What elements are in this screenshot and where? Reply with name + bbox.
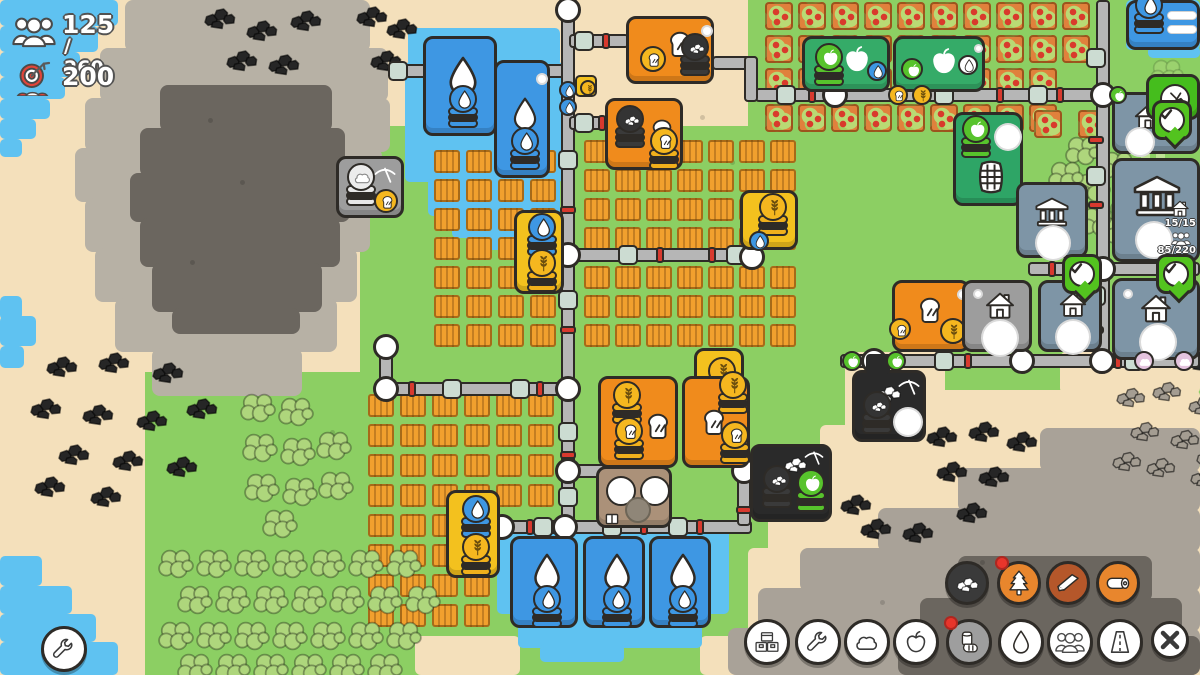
wheat-field-tile <box>677 227 703 250</box>
tree-icon <box>310 548 346 580</box>
drop-icon <box>872 65 884 79</box>
speckle <box>980 560 985 565</box>
wheat-field-tile <box>770 140 796 163</box>
building-town-hall[interactable] <box>1016 182 1088 258</box>
wheat-field-tile <box>368 484 394 507</box>
wheat-field-tile <box>677 324 703 347</box>
coal-deposit-icon <box>26 392 64 420</box>
green-apple-stack-token <box>797 469 825 497</box>
apple-icon <box>907 63 921 78</box>
check-icon <box>1162 260 1178 276</box>
rock-icon <box>354 168 371 187</box>
building-coal-mine[interactable] <box>852 370 926 442</box>
wheat-field-tile <box>615 169 641 192</box>
building-water-collector[interactable] <box>583 536 645 628</box>
worker-slot <box>973 289 983 299</box>
tree-icon <box>234 548 270 580</box>
worker-slot <box>1123 289 1133 299</box>
road-connector <box>388 61 408 81</box>
road-node[interactable] <box>373 334 399 360</box>
drop-icon <box>1142 0 1159 15</box>
wheat-field-tile <box>739 140 765 163</box>
blue-stack-token <box>528 213 556 241</box>
orchard-tile <box>831 2 859 30</box>
bread-icon <box>643 411 673 441</box>
toolbar-button-close[interactable] <box>1151 621 1189 659</box>
bread-icon <box>646 51 662 69</box>
coal-deposit-icon <box>42 350 80 378</box>
terrain-water <box>0 99 50 119</box>
building-bakery[interactable] <box>605 98 683 170</box>
road-node[interactable] <box>555 0 581 23</box>
cargo-token <box>580 80 596 96</box>
wheat-field-tile <box>646 324 672 347</box>
tree-icon <box>386 548 422 580</box>
wheat-field-tile <box>739 169 765 192</box>
terrain-water <box>540 644 624 662</box>
tree-icon <box>282 476 318 508</box>
wheat-field-tile <box>496 454 522 477</box>
output-rack <box>1167 25 1197 34</box>
gold-wheat-stack-token <box>528 249 556 277</box>
wheat-field-tile <box>464 604 490 627</box>
road-blocked-marker <box>656 247 664 263</box>
blue-stack-token <box>603 585 631 613</box>
wheat-field-tile <box>498 179 524 202</box>
drop-icon <box>754 235 766 249</box>
bread-icon <box>380 194 395 210</box>
tree-icon <box>310 620 346 652</box>
stone-deposit-icon <box>1186 462 1200 488</box>
check-icon <box>1158 106 1174 122</box>
wheat-field-tile <box>466 324 492 347</box>
check-icon <box>1068 260 1084 276</box>
coal-stack-token <box>681 33 709 61</box>
pick-icon <box>373 165 397 183</box>
tree-icon <box>272 548 308 580</box>
cargo-token <box>888 85 908 105</box>
wheat-field-tile <box>464 424 490 447</box>
orchard-tile <box>798 2 826 30</box>
wheat-field-tile <box>434 324 460 347</box>
road-connector <box>442 379 462 399</box>
building-apple-farm[interactable] <box>802 36 890 92</box>
wheat-field-tile <box>498 324 524 347</box>
wheat-field-tile <box>530 324 556 347</box>
coal-deposit-icon <box>108 444 146 472</box>
house-icon <box>1139 293 1173 325</box>
wheat-field-tile <box>464 454 490 477</box>
wheat-field-tile <box>528 454 554 477</box>
drop-icon <box>1009 630 1033 654</box>
stone-deposit-icon <box>1126 416 1162 442</box>
road-connector <box>1086 48 1106 68</box>
stone-deposit-icon <box>1108 446 1144 472</box>
wheat-field-tile <box>368 514 394 537</box>
road-blocked-marker <box>708 247 716 263</box>
rock-icon <box>855 630 879 654</box>
tree-icon <box>272 620 308 652</box>
coal-deposit-icon <box>286 4 324 32</box>
orchard-tile <box>765 35 793 63</box>
road-connector <box>533 517 553 537</box>
road-blocked-marker <box>964 353 972 369</box>
road-segment[interactable] <box>744 56 758 102</box>
tree-icon <box>215 652 251 675</box>
submenu-button-sawmill[interactable] <box>1046 561 1090 605</box>
wheat-field-tile <box>708 198 734 221</box>
tree-icon <box>234 620 270 652</box>
close-icon <box>1158 628 1182 652</box>
terrain-water <box>0 346 24 368</box>
wheat-field-tile <box>434 208 460 231</box>
building-water-collector[interactable] <box>423 36 497 136</box>
road-blocked-marker <box>526 519 534 535</box>
bread-icon <box>895 323 909 338</box>
toolbar-button-food[interactable] <box>893 619 939 665</box>
tree-icon <box>196 620 232 652</box>
apple-icon <box>847 355 859 369</box>
wheat-field-tile <box>770 324 796 347</box>
wrench-icon <box>52 637 76 661</box>
road-blocked-marker <box>560 206 576 214</box>
drop-icon <box>535 218 552 237</box>
coalpile-icon <box>870 396 887 415</box>
wheat-field-tile <box>528 424 554 447</box>
road-node[interactable] <box>373 376 399 402</box>
tree-icon <box>1006 570 1032 596</box>
people-icon <box>12 14 56 48</box>
road-connector <box>934 351 954 371</box>
road-blocked-marker <box>408 381 416 397</box>
coal-deposit-icon <box>94 346 132 374</box>
orchard-tile <box>765 104 793 132</box>
speckle <box>880 600 885 605</box>
log-hand-icon <box>957 630 981 654</box>
check-icon <box>1159 107 1185 133</box>
tree-icon <box>262 508 298 540</box>
apple-icon <box>1114 90 1125 102</box>
wheat-field-tile <box>584 169 610 192</box>
wheat-field-tile <box>677 266 703 289</box>
building-water-collector[interactable] <box>494 60 550 178</box>
wheat-field-tile <box>584 324 610 347</box>
residents-label: 85/220 <box>1140 245 1196 256</box>
terrain-mountain-peak <box>140 128 345 177</box>
terrain-water <box>0 316 36 346</box>
wheat-field-tile <box>466 266 492 289</box>
pick-icon <box>897 377 921 395</box>
wheat-field-tile <box>400 454 426 477</box>
blue-stack-token <box>449 85 477 113</box>
tree-icon <box>242 432 278 464</box>
building-wheat-farm[interactable] <box>514 210 564 294</box>
wheat-field-tile <box>434 150 460 173</box>
orchard-tile <box>831 104 859 132</box>
road-connector <box>574 113 594 133</box>
drop-icon <box>676 590 693 609</box>
worker-slot <box>974 44 983 53</box>
apple-icon <box>969 120 986 139</box>
road-connector <box>1086 166 1106 186</box>
building-bakery[interactable] <box>682 376 750 468</box>
wheat-icon <box>946 323 962 341</box>
wheat-field-tile <box>434 179 460 202</box>
box-icon <box>605 511 619 525</box>
cargo-token <box>1174 351 1194 371</box>
gold-wheat-stack-token <box>759 193 787 221</box>
white-drop-token <box>958 55 978 75</box>
wrench-icon <box>806 630 830 654</box>
wheat-icon <box>535 254 552 273</box>
stone-deposit-icon <box>1142 452 1178 478</box>
blue-drop-token <box>749 231 769 251</box>
apple-icon <box>930 47 958 75</box>
terrain-mountain-peak <box>160 85 332 132</box>
wheat-field-tile <box>498 295 524 318</box>
coal-deposit-icon <box>242 14 280 42</box>
wheat-field-tile <box>466 179 492 202</box>
wheat-field-tile <box>466 295 492 318</box>
road-blocked-marker <box>696 519 704 535</box>
wheat-field-tile <box>677 169 703 192</box>
building-wheat-farm[interactable] <box>740 190 798 250</box>
road-connector <box>558 422 578 442</box>
gold-bread-token <box>889 318 911 340</box>
coal-icon <box>954 570 980 596</box>
wheat-field-tile <box>466 150 492 173</box>
crates-icon <box>755 630 779 654</box>
wheat-field-tile <box>739 295 765 318</box>
terrain-water <box>0 586 72 614</box>
speckle <box>190 260 195 265</box>
wheat-field-tile <box>584 198 610 221</box>
tree-icon <box>278 396 314 428</box>
gold-bread-stack-token <box>721 421 749 449</box>
orchard-tile <box>864 2 892 30</box>
wheat-field-tile <box>615 198 641 221</box>
building-cider-maker[interactable] <box>953 112 1023 206</box>
log-icon <box>1105 570 1131 596</box>
bread-icon <box>657 132 674 151</box>
road-node[interactable] <box>555 458 581 484</box>
road-connector <box>558 150 578 170</box>
tree-icon <box>244 472 280 504</box>
toolbar-button-tools[interactable] <box>795 619 841 665</box>
wheat-field-tile <box>708 324 734 347</box>
goal-complete-bubble <box>1152 100 1192 140</box>
gold-bread-stack-token <box>615 417 643 445</box>
notification-badge <box>995 556 1009 570</box>
tree-icon <box>367 584 403 616</box>
cargo-crate <box>575 75 597 97</box>
toolbar-button-storage[interactable] <box>744 619 790 665</box>
cargo-token <box>842 351 862 371</box>
road-icon <box>1108 630 1132 654</box>
tree-icon <box>348 548 384 580</box>
building-stone-mine[interactable] <box>336 156 404 218</box>
tree-icon <box>215 584 251 616</box>
coal-deposit-icon <box>222 44 260 72</box>
green-apple-stack-token <box>962 115 990 143</box>
tree-icon <box>177 584 213 616</box>
building-bakery[interactable] <box>892 280 970 352</box>
terrain-water <box>0 556 42 586</box>
wheat-field-tile <box>434 295 460 318</box>
wheat-field-tile <box>432 454 458 477</box>
coal-deposit-icon <box>952 496 990 524</box>
wheat-field-tile <box>708 266 734 289</box>
resident-slot <box>1055 319 1091 355</box>
wheat-field-tile <box>434 237 460 260</box>
building-water-collector[interactable] <box>649 536 711 628</box>
gold-bread-stack-token <box>650 127 678 155</box>
terrain-sand <box>415 636 520 675</box>
wheat-field-tile <box>530 179 556 202</box>
building-wheat-farm[interactable] <box>446 490 500 578</box>
wheat-icon <box>917 89 929 103</box>
coal-stack-token <box>763 465 791 493</box>
submenu-button-coal[interactable] <box>945 561 989 605</box>
wheat-field-tile <box>708 169 734 192</box>
building-grain-mill[interactable] <box>596 466 672 528</box>
house-icon <box>1168 200 1192 218</box>
wheat-field-tile <box>615 295 641 318</box>
stone-deposit-icon <box>1112 382 1148 408</box>
building-apple-farm[interactable] <box>893 36 985 92</box>
wheat-field-tile <box>400 514 426 537</box>
notification-badge <box>944 616 958 630</box>
coal-deposit-icon <box>922 420 960 448</box>
blue-stack-token <box>462 495 490 523</box>
orchard-tile <box>897 104 925 132</box>
drop-icon <box>518 132 535 151</box>
road-connector <box>558 487 578 507</box>
wheat-field-tile <box>400 394 426 417</box>
road-blocked-marker <box>1088 201 1104 209</box>
orchard-tile <box>765 2 793 30</box>
bread-icon <box>728 426 745 445</box>
wheat-field-tile <box>466 237 492 260</box>
houses-label: 15/15 <box>1146 218 1196 229</box>
wheat-field-tile <box>770 295 796 318</box>
cargo-token <box>559 98 577 116</box>
road-blocked-marker <box>1088 136 1104 144</box>
wheat-icon <box>585 84 595 95</box>
building-coal-mine[interactable] <box>750 444 832 522</box>
coal-deposit-icon <box>78 398 116 426</box>
building-water-collector[interactable] <box>510 536 578 628</box>
building-bakery[interactable] <box>626 16 714 84</box>
coal-deposit-icon <box>148 356 186 384</box>
speckle <box>240 180 245 185</box>
green-apple-token <box>901 58 923 80</box>
worker-slot <box>994 123 1022 151</box>
orchard-tile <box>1034 110 1062 138</box>
road-blocked-marker <box>560 326 576 334</box>
toolbar-button-water[interactable] <box>998 619 1044 665</box>
wheat-icon <box>726 376 743 395</box>
blue-stack-token <box>669 585 697 613</box>
apple-icon <box>904 630 928 654</box>
barrel-icon <box>975 159 1007 195</box>
blue-stack-token <box>511 127 539 155</box>
drop-icon <box>469 500 486 519</box>
coal-deposit-icon <box>964 415 1002 443</box>
wheat-field-tile <box>432 424 458 447</box>
orchard-tile <box>1062 2 1090 30</box>
cargo-token <box>1134 351 1154 371</box>
silver-stack-token <box>347 163 375 191</box>
tree-icon <box>196 548 232 580</box>
toolbar-button-population[interactable] <box>1047 619 1093 665</box>
green-apple-stack-token <box>815 43 843 71</box>
wheat-field-tile <box>400 424 426 447</box>
plank-icon <box>1055 570 1081 596</box>
wheat-field-tile <box>708 295 734 318</box>
water-drop-icon <box>511 97 539 131</box>
building-water-collector[interactable] <box>1126 0 1200 50</box>
tree-icon <box>316 430 352 462</box>
toolbar-button-roads[interactable] <box>1097 619 1143 665</box>
game-viewport: 125 / 260 200 15/15 85/220 <box>0 0 1200 675</box>
toolbar-button-stone[interactable] <box>844 619 890 665</box>
tree-icon <box>405 584 441 616</box>
wheat-field-tile <box>708 140 734 163</box>
building-house[interactable] <box>962 280 1032 352</box>
road-blocked-marker <box>602 33 610 49</box>
worker-slot <box>893 407 923 437</box>
settings-button[interactable] <box>41 626 87 672</box>
tree-icon <box>291 652 327 675</box>
terrain-water <box>0 139 22 157</box>
wheat-field-tile <box>368 424 394 447</box>
submenu-button-logging[interactable] <box>1096 561 1140 605</box>
tree-icon <box>253 584 289 616</box>
tree-icon <box>177 652 213 675</box>
road-connector <box>574 31 594 51</box>
gold-wheat-stack-token <box>462 533 490 561</box>
gold-bread-token <box>640 46 666 72</box>
orchard-tile <box>930 2 958 30</box>
road-blocked-marker <box>996 87 1004 103</box>
tree-icon <box>280 436 316 468</box>
coalpile-icon <box>623 110 640 129</box>
tree-icon <box>318 470 354 502</box>
drop-icon <box>456 90 473 109</box>
building-bakery[interactable] <box>598 376 678 468</box>
wheat-field-tile <box>615 324 641 347</box>
tree-icon <box>158 620 194 652</box>
coal-deposit-icon <box>836 488 874 516</box>
wheat-field-tile <box>739 324 765 347</box>
road-node[interactable] <box>555 376 581 402</box>
orchard-tile <box>963 2 991 30</box>
tree-icon <box>291 584 327 616</box>
bread-icon <box>915 295 945 325</box>
coal-deposit-icon <box>30 470 68 498</box>
house-icon <box>984 291 1016 321</box>
wheat-field-tile <box>646 266 672 289</box>
road-blocked-marker <box>1056 87 1064 103</box>
apple-icon <box>822 48 839 67</box>
people-icon <box>1055 630 1085 654</box>
tree-icon <box>348 620 384 652</box>
tree-icon <box>329 652 365 675</box>
road-connector <box>618 245 638 265</box>
wheat-field-tile <box>646 295 672 318</box>
tree-icon <box>253 652 289 675</box>
